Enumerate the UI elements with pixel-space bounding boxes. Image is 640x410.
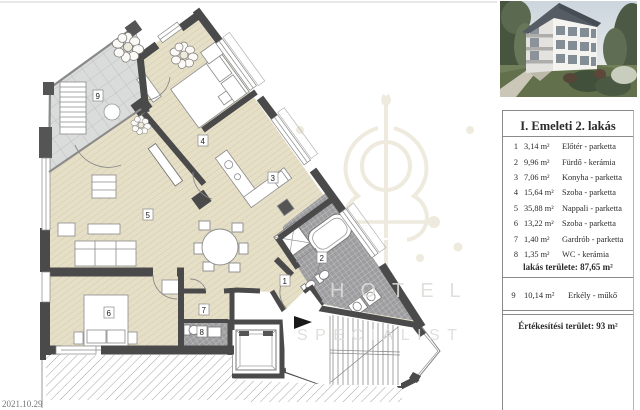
svg-text:9: 9 — [96, 92, 101, 101]
svg-text:2: 2 — [320, 254, 325, 263]
svg-text:1: 1 — [283, 277, 288, 286]
svg-text:7: 7 — [202, 306, 207, 315]
svg-text:2021.10.29: 2021.10.29 — [2, 399, 43, 409]
svg-text:6: 6 — [107, 309, 112, 318]
svg-text:HOTEL: HOTEL — [330, 280, 477, 302]
svg-text:5: 5 — [146, 211, 151, 220]
svg-text:SPECIALIST: SPECIALIST — [297, 327, 464, 344]
svg-text:4: 4 — [201, 137, 206, 146]
svg-text:8: 8 — [200, 328, 205, 337]
svg-text:3: 3 — [271, 174, 276, 183]
